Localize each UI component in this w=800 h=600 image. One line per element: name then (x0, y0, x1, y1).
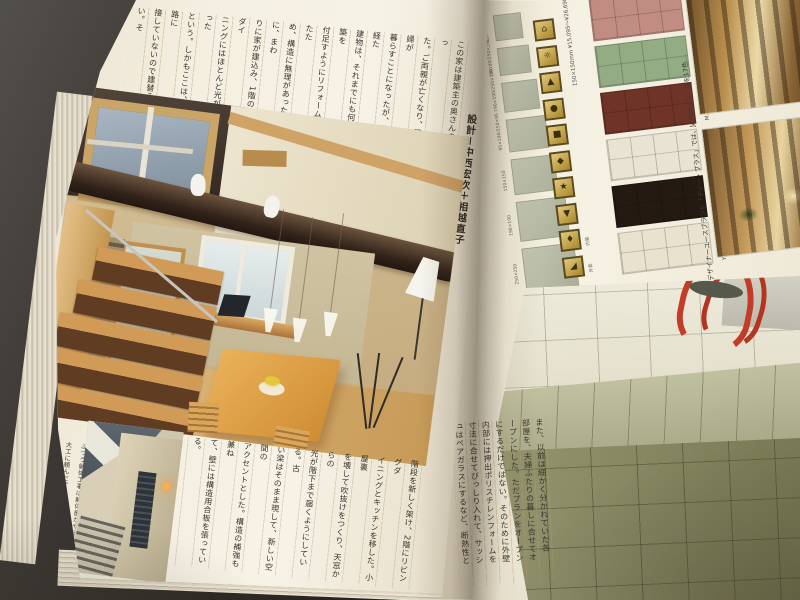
red-chair (678, 275, 762, 351)
feature-row: ☼ (536, 41, 584, 63)
feature-row: ▲ (539, 68, 587, 90)
feature-row: ★ (552, 173, 600, 195)
wood-bracket (242, 150, 286, 167)
feature-row: ◆ (549, 147, 597, 169)
dimension-label: 150×150 (494, 166, 505, 193)
feature-row: ♦内装 (558, 226, 606, 248)
feature-icon: ☼ (536, 44, 559, 67)
feature-icon: ◢ (562, 255, 585, 278)
feature-row: ● (542, 94, 590, 116)
feature-row: ▼ (555, 199, 603, 221)
feature-icon: ◆ (549, 150, 572, 173)
feature-row: ◢外装 (562, 252, 610, 274)
left-page-content: この家は建築主の奥さんの実家だっ た。ご両親が亡くなり、建築主夫婦が 暮らすこと… (0, 0, 496, 600)
color-swatch (594, 35, 690, 88)
dimension-label: 95×190/250×95 (489, 124, 500, 151)
feature-icon: ♦ (558, 229, 581, 252)
dimension-label: 190×190 (500, 210, 511, 237)
feature-icon: ■ (546, 123, 569, 146)
tile-chip (501, 79, 540, 113)
article-body-text-continued: 階段を新しく架け、2階にリビングダ イニングとキッチンを移した。小屋裏 を壊して… (174, 436, 422, 590)
feature-icon: ▲ (539, 71, 562, 94)
feature-icon: ⌂ (533, 18, 556, 41)
color-swatch (589, 0, 685, 41)
feature-icon: ● (542, 97, 565, 120)
dining-chair (187, 402, 219, 434)
feature-icon: ★ (552, 176, 575, 199)
dimension-label: 190×190/250×190 (484, 86, 495, 113)
floor-lamp-stand (414, 298, 424, 360)
right-page: 150×150×7.5 (H)190/250×190 190×190/250×1… (440, 0, 800, 600)
feature-icon: ▼ (555, 202, 578, 225)
interior-photo (37, 86, 469, 466)
tile-chip (493, 12, 524, 41)
catalog-photo (684, 0, 800, 115)
catalog-photo (701, 114, 800, 258)
left-page: この家は建築主の奥さんの実家だっ た。ご両親が亡くなり、建築主夫婦が 暮らすこと… (50, 0, 495, 596)
feature-row: ■ (546, 120, 594, 142)
article-body-text-right: また、以前は細かく分かれていた各 部屋を、夫婦ふたりの暮しに合せてオ ープンにし… (452, 418, 554, 587)
exterior-photo (70, 421, 184, 584)
tile-chip (506, 115, 550, 153)
beam-uplight-lamp (190, 174, 206, 196)
photographed-magazine-spread: この家は建築主の奥さんの実家だっ た。ご両親が亡くなり、建築主夫婦が 暮らすこと… (0, 0, 800, 600)
dimension-label: 250×250 (506, 259, 517, 286)
tile-chip (497, 44, 532, 76)
